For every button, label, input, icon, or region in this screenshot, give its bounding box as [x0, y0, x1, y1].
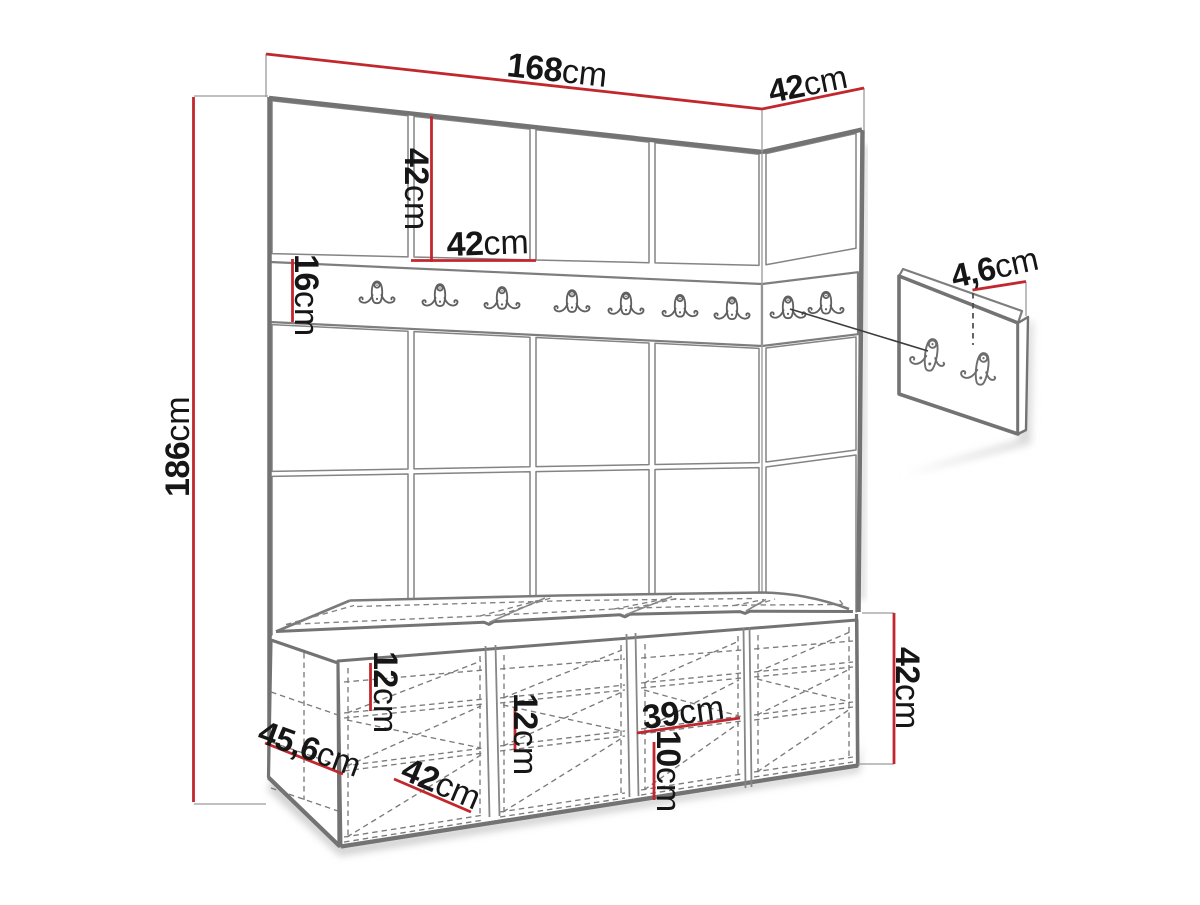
- svg-text:10cm: 10cm: [649, 730, 687, 812]
- svg-text:16cm: 16cm: [287, 254, 325, 336]
- svg-text:12cm: 12cm: [506, 693, 544, 775]
- svg-text:186cm: 186cm: [159, 396, 197, 497]
- svg-text:42cm: 42cm: [446, 223, 529, 264]
- svg-text:42cm: 42cm: [397, 148, 435, 230]
- svg-text:12cm: 12cm: [366, 651, 404, 733]
- svg-text:42cm: 42cm: [888, 647, 926, 729]
